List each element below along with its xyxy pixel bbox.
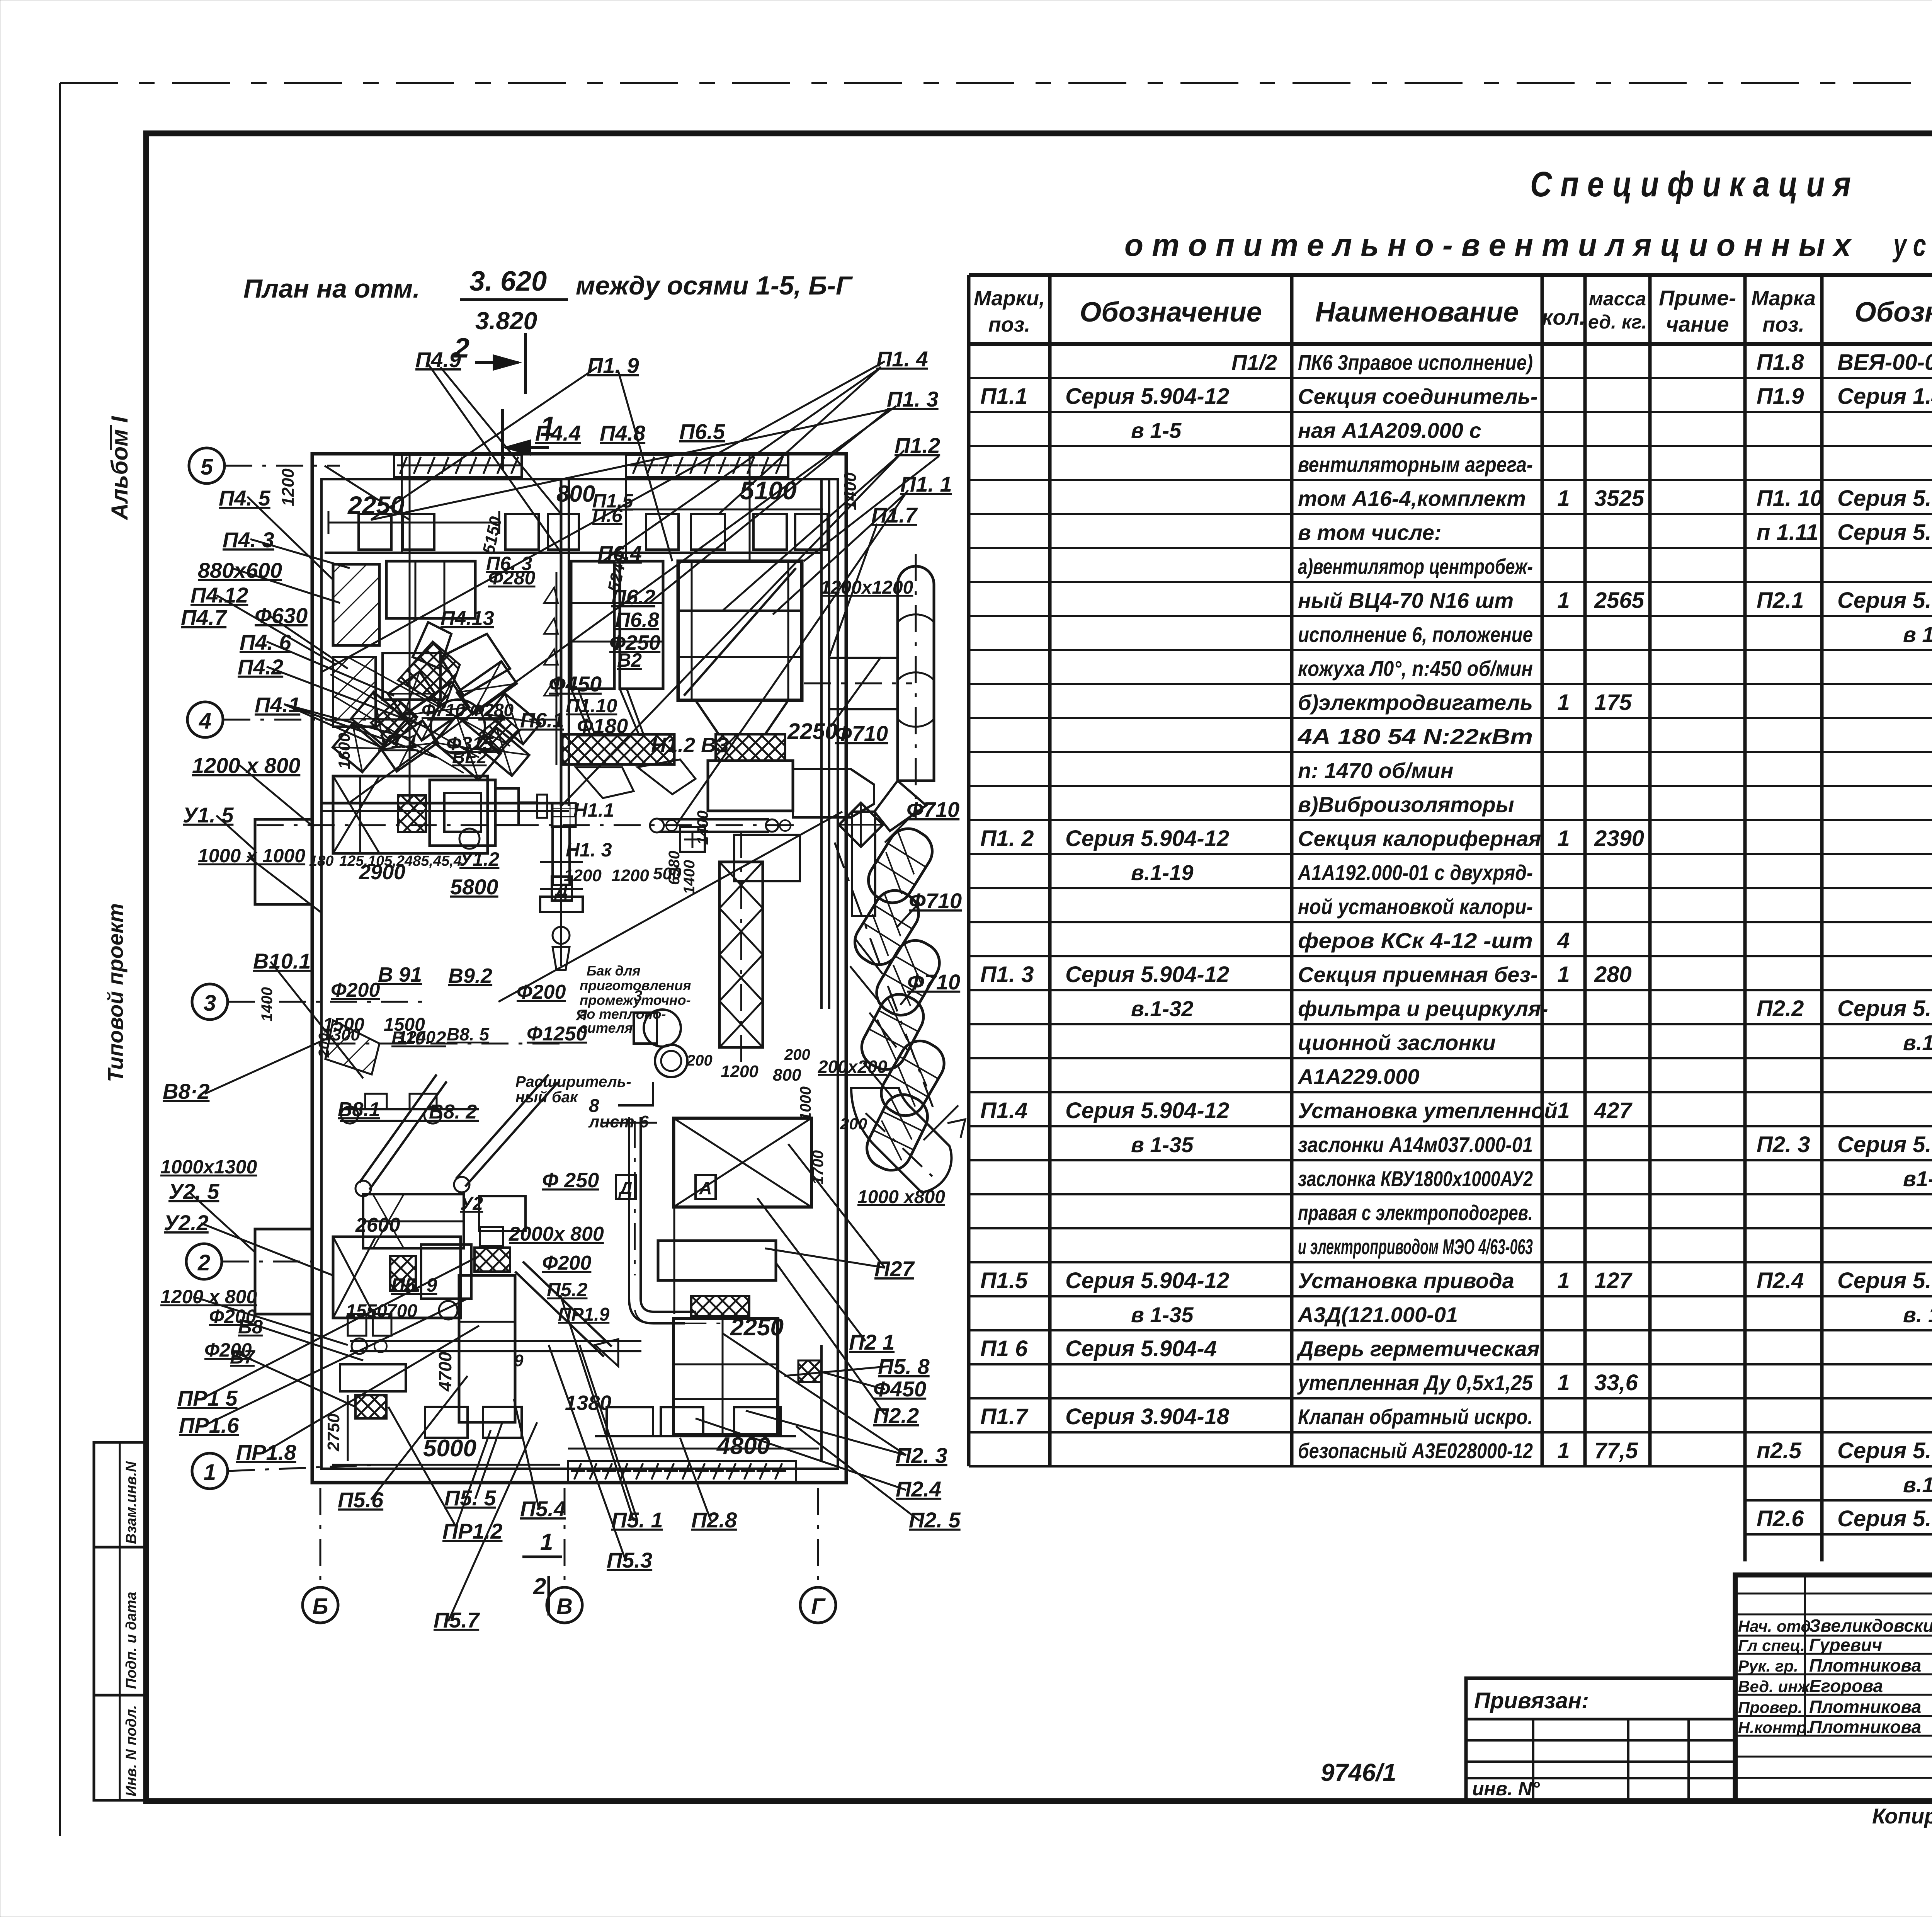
svg-text:Б: Б — [312, 1594, 328, 1619]
svg-text:Типовой проект: Типовой проект — [103, 903, 128, 1082]
svg-text:1: 1 — [1557, 1370, 1570, 1395]
svg-text:2250: 2250 — [787, 719, 837, 744]
svg-text:П1.7: П1.7 — [980, 1404, 1029, 1429]
svg-text:П2.8: П2.8 — [691, 1508, 737, 1532]
svg-text:ВЕЯ-00-00-00 а.XI: ВЕЯ-00-00-00 а.XI — [1837, 350, 1932, 375]
svg-text:5000: 5000 — [423, 1435, 476, 1462]
svg-text:Егорова: Егорова — [1809, 1676, 1883, 1696]
svg-text:Серия 5.904-5: Серия 5.904-5 — [1837, 486, 1932, 511]
svg-text:Приме-: Приме- — [1659, 286, 1736, 310]
svg-text:1200 х 800: 1200 х 800 — [160, 1286, 257, 1308]
svg-text:2750: 2750 — [324, 1413, 343, 1452]
svg-text:Установка утепленной: Установка утепленной — [1298, 1098, 1558, 1123]
svg-text:П4.9: П4.9 — [415, 347, 461, 372]
svg-text:180: 180 — [309, 853, 333, 869]
svg-text:1600: 1600 — [335, 733, 353, 769]
svg-text:Д: Д — [618, 1178, 632, 1198]
svg-text:4: 4 — [1557, 928, 1570, 953]
svg-text:фильтра и рециркуля-: фильтра и рециркуля- — [1298, 996, 1548, 1021]
svg-text:Секция приемная без-: Секция приемная без- — [1298, 962, 1538, 987]
svg-text:Секция калориферная: Секция калориферная — [1298, 826, 1541, 851]
svg-text:Серия 5.904-12: Серия 5.904-12 — [1065, 826, 1229, 851]
svg-text:ный бак: ный бак — [515, 1089, 578, 1106]
svg-text:Бак для: Бак для — [587, 963, 641, 979]
svg-text:4700: 4700 — [435, 1352, 455, 1392]
svg-text:в1-32: в1-32 — [1903, 1166, 1932, 1191]
svg-text:ПР1 5: ПР1 5 — [177, 1386, 238, 1410]
svg-text:в.1-35: в.1-35 — [1903, 1473, 1932, 1497]
svg-text:Расширитель-: Расширитель- — [515, 1073, 631, 1090]
svg-text:Ф200: Ф200 — [517, 981, 566, 1003]
svg-text:1: 1 — [204, 1460, 216, 1485]
svg-text:П1.5: П1.5 — [980, 1268, 1028, 1293]
svg-text:3: 3 — [634, 987, 642, 1004]
svg-text:1200 х 800: 1200 х 800 — [192, 753, 300, 778]
svg-text:Звеликдовский: Звеликдовский — [1809, 1616, 1932, 1636]
svg-text:Обозначение: Обозначение — [1080, 297, 1262, 328]
svg-text:В: В — [556, 1594, 573, 1619]
svg-text:1000 х800: 1000 х800 — [857, 1187, 945, 1207]
svg-text:1: 1 — [1557, 962, 1570, 987]
svg-text:4800: 4800 — [716, 1433, 770, 1459]
svg-text:200х200: 200х200 — [818, 1057, 887, 1077]
svg-text:П6.5: П6.5 — [679, 419, 725, 444]
svg-text:Серия 5.904-12: Серия 5.904-12 — [1065, 962, 1229, 987]
svg-text:Ф280: Ф280 — [488, 567, 536, 589]
svg-text:1: 1 — [1557, 486, 1570, 511]
svg-text:П1.7: П1.7 — [871, 503, 918, 527]
svg-text:В9.2: В9.2 — [448, 964, 492, 987]
svg-text:Секция соединитель-: Секция соединитель- — [1298, 384, 1538, 409]
svg-text:У1. 5: У1. 5 — [183, 803, 234, 827]
svg-text:заслонки А14м037.000-01: заслонки А14м037.000-01 — [1298, 1132, 1533, 1157]
svg-text:2250: 2250 — [730, 1314, 784, 1341]
svg-text:В8.1: В8.1 — [338, 1098, 380, 1121]
svg-text:П2.6: П2.6 — [1757, 1506, 1804, 1531]
svg-text:П1.1: П1.1 — [980, 384, 1027, 409]
svg-text:Подп. и дата: Подп. и дата — [123, 1592, 139, 1689]
svg-text:127: 127 — [1594, 1268, 1633, 1293]
svg-text:П1.8: П1.8 — [1757, 350, 1804, 375]
svg-text:П2 1: П2 1 — [849, 1330, 895, 1354]
svg-text:кожуха Л0°, n:450 об/мин: кожуха Л0°, n:450 об/мин — [1298, 656, 1533, 681]
svg-text:1240: 1240 — [398, 1028, 435, 1047]
svg-text:П4.8: П4.8 — [600, 421, 646, 445]
svg-text:П1.4: П1.4 — [980, 1098, 1027, 1123]
svg-text:Серия 5.904-12: Серия 5.904-12 — [1837, 996, 1932, 1021]
svg-text:Дверь герметическая: Дверь герметическая — [1296, 1336, 1540, 1361]
svg-text:ед. кг.: ед. кг. — [1588, 311, 1647, 333]
svg-text:Серия 5.904-12: Серия 5.904-12 — [1837, 1132, 1932, 1157]
svg-text:77,5: 77,5 — [1594, 1438, 1638, 1463]
svg-text:1400: 1400 — [259, 987, 276, 1021]
svg-text:Обозначение: Обозначение — [1855, 297, 1932, 328]
svg-text:П1. 3: П1. 3 — [887, 387, 939, 411]
svg-text:3.820: 3.820 — [475, 307, 537, 335]
svg-text:2000х 800: 2000х 800 — [509, 1223, 604, 1245]
svg-text:П5. 5: П5. 5 — [444, 1486, 497, 1510]
svg-text:го теплоно-: го теплоно- — [580, 1006, 666, 1022]
svg-text:1400: 1400 — [681, 860, 698, 894]
svg-text:Клапан обратный искро.: Клапан обратный искро. — [1298, 1405, 1533, 1429]
svg-text:2: 2 — [533, 1573, 546, 1599]
svg-text:вентиляторным агрега-: вентиляторным агрега- — [1298, 452, 1533, 477]
svg-text:Г: Г — [811, 1594, 826, 1619]
svg-text:1: 1 — [1557, 1268, 1570, 1293]
svg-text:в 1-5: в 1-5 — [1903, 622, 1932, 647]
svg-text:1000 х 1000: 1000 х 1000 — [198, 845, 305, 867]
svg-text:П5. 9: П5. 9 — [391, 1274, 437, 1296]
svg-text:Серия 5.904-5: Серия 5.904-5 — [1837, 520, 1932, 545]
svg-text:П4.1: П4.1 — [255, 693, 300, 717]
svg-text:Серия 5.904-12: Серия 5.904-12 — [1065, 1268, 1229, 1293]
svg-text:9: 9 — [514, 1351, 524, 1370]
svg-text:П4.12: П4.12 — [190, 583, 248, 607]
svg-text:У2. 5: У2. 5 — [168, 1179, 219, 1204]
svg-text:У1.2: У1.2 — [459, 848, 500, 870]
svg-text:1200: 1200 — [564, 866, 602, 885]
svg-text:Серия 5.904-12: Серия 5.904-12 — [1837, 1268, 1932, 1293]
svg-text:том А16-4,комплект: том А16-4,комплект — [1298, 486, 1526, 511]
svg-text:Привязан:: Привязан: — [1474, 1688, 1589, 1713]
svg-text:п2.5: п2.5 — [1757, 1438, 1802, 1463]
svg-text:Копировал:: Копировал: — [1872, 1804, 1932, 1828]
svg-text:700: 700 — [386, 1301, 417, 1321]
svg-text:в 1-5: в 1-5 — [1131, 418, 1182, 443]
svg-text:П1. 10: П1. 10 — [1757, 486, 1823, 511]
svg-text:П1/2: П1/2 — [1231, 350, 1277, 375]
svg-text:б)электродвигатель: б)электродвигатель — [1298, 690, 1533, 715]
svg-text:Ф710: Ф710 — [835, 721, 888, 746]
svg-text:Н.контр.: Н.контр. — [1738, 1718, 1811, 1737]
svg-text:П6.1: П6.1 — [520, 709, 564, 732]
svg-text:Ф180: Ф180 — [577, 715, 628, 738]
svg-text:кол.: кол. — [1542, 305, 1585, 329]
svg-text:ПР1.8: ПР1.8 — [236, 1440, 296, 1464]
svg-text:о т о п и т е л ь н о - в е н: о т о п и т е л ь н о - в е н т и л я ц … — [1124, 228, 1852, 263]
svg-text:У1.1: У1.1 — [378, 731, 418, 752]
svg-text:3525: 3525 — [1594, 486, 1645, 511]
svg-text:В8: В8 — [238, 1316, 263, 1338]
svg-text:1: 1 — [1557, 1438, 1570, 1463]
svg-text:В10.1: В10.1 — [253, 949, 311, 973]
svg-text:Наименование: Наименование — [1315, 297, 1519, 328]
svg-text:2900: 2900 — [359, 861, 405, 884]
svg-text:А: А — [699, 1178, 712, 1198]
svg-text:880х600: 880х600 — [198, 558, 282, 582]
svg-text:Серия 5.904-12: Серия 5.904-12 — [1837, 588, 1932, 613]
svg-text:заслонка КВУ1800х1000АУ2: заслонка КВУ1800х1000АУ2 — [1298, 1166, 1533, 1191]
svg-text:Серия 5.904-12: Серия 5.904-12 — [1837, 1438, 1932, 1463]
svg-text:чание: чание — [1666, 312, 1729, 336]
svg-text:Я: Я — [575, 1007, 587, 1024]
svg-text:Серия 3.904-18: Серия 3.904-18 — [1065, 1404, 1230, 1429]
svg-text:1200: 1200 — [611, 866, 649, 885]
svg-text:Серия 5.904-4: Серия 5.904-4 — [1837, 1506, 1932, 1531]
svg-text:П4.2: П4.2 — [238, 655, 283, 679]
svg-text:П4. 5: П4. 5 — [219, 486, 271, 510]
svg-text:Н1.2 ВЗ: Н1.2 ВЗ — [651, 734, 729, 757]
svg-text:427: 427 — [1594, 1098, 1633, 1123]
svg-text:У2.2: У2.2 — [164, 1210, 209, 1235]
svg-text:у с т а н о в о к: у с т а н о в о к — [1892, 228, 1932, 263]
svg-text:П1. 1: П1. 1 — [900, 472, 952, 496]
svg-text:Взам.инв.N: Взам.инв.N — [123, 1461, 139, 1544]
svg-text:Ф450: Ф450 — [873, 1377, 926, 1401]
svg-text:между осями 1-5, Б-Г: между осями 1-5, Б-Г — [576, 271, 853, 300]
svg-text:в.1-32: в.1-32 — [1131, 996, 1193, 1021]
svg-text:ПК6 3правое исполнение): ПК6 3правое исполнение) — [1298, 350, 1533, 375]
svg-text:Плотникова: Плотникова — [1809, 1655, 1921, 1675]
svg-text:П.6: П.6 — [592, 505, 623, 526]
svg-text:Ф630: Ф630 — [255, 603, 308, 628]
svg-text:поз.: поз. — [1762, 313, 1804, 336]
svg-text:Инв. N подл.: Инв. N подл. — [123, 1705, 139, 1796]
svg-text:П1. 2: П1. 2 — [980, 826, 1034, 851]
svg-text:исполнение 6, положение: исполнение 6, положение — [1298, 622, 1533, 647]
svg-text:утепленная Ду 0,5х1,25: утепленная Ду 0,5х1,25 — [1297, 1371, 1533, 1395]
svg-text:в.1-19: в.1-19 — [1131, 860, 1193, 885]
svg-text:а)вентилятор центробеж-: а)вентилятор центробеж- — [1298, 554, 1533, 579]
svg-text:Ф200: Ф200 — [331, 979, 380, 1001]
svg-text:П4.4: П4.4 — [535, 421, 581, 445]
svg-text:П4. 3: П4. 3 — [223, 528, 274, 552]
svg-text:П5.2: П5.2 — [547, 1279, 588, 1301]
svg-text:Серия 5.904-12: Серия 5.904-12 — [1065, 1098, 1229, 1123]
svg-text:П2. 3: П2. 3 — [896, 1443, 947, 1468]
svg-text:П2. 5: П2. 5 — [909, 1508, 961, 1532]
svg-text:4: 4 — [199, 708, 211, 734]
svg-text:ПР1.9: ПР1.9 — [558, 1304, 610, 1325]
svg-text:П5. 8: П5. 8 — [878, 1354, 930, 1379]
svg-text:Ф450: Ф450 — [549, 672, 602, 696]
svg-text:П4. 6: П4. 6 — [240, 630, 292, 654]
svg-text:П2.2: П2.2 — [873, 1403, 919, 1428]
svg-text:П2.2: П2.2 — [1757, 996, 1804, 1021]
svg-text:200: 200 — [840, 1115, 867, 1133]
svg-text:П5. 1: П5. 1 — [611, 1508, 663, 1532]
svg-text:П1.10: П1.10 — [566, 695, 617, 717]
svg-text:3: 3 — [204, 991, 216, 1016]
svg-text:п 1.11: п 1.11 — [1757, 520, 1818, 545]
svg-text:200: 200 — [686, 1052, 713, 1069]
svg-text:4А 180 54 N:22кВт: 4А 180 54 N:22кВт — [1298, 724, 1533, 749]
svg-text:Ф200: Ф200 — [542, 1252, 591, 1274]
svg-text:масса: масса — [1589, 288, 1646, 310]
svg-text:800: 800 — [556, 481, 595, 507]
svg-text:С п е ц и ф и к а ц и я: С п е ц и ф и к а ц и я — [1530, 165, 1851, 204]
svg-text:П1. 3: П1. 3 — [980, 962, 1034, 987]
svg-text:1300: 1300 — [322, 1025, 360, 1044]
svg-text:33,6: 33,6 — [1594, 1370, 1638, 1395]
svg-text:5800: 5800 — [450, 875, 498, 899]
svg-text:П6.8: П6.8 — [615, 608, 659, 632]
svg-text:П5.6: П5.6 — [338, 1488, 384, 1512]
svg-text:2390: 2390 — [1594, 826, 1644, 851]
svg-text:П1.2: П1.2 — [895, 433, 940, 458]
svg-text:1: 1 — [1557, 588, 1570, 613]
svg-text:Вед. инж: Вед. инж — [1738, 1677, 1811, 1696]
svg-text:П2.4: П2.4 — [1757, 1268, 1804, 1293]
svg-text:6980: 6980 — [666, 851, 683, 885]
svg-text:1: 1 — [1557, 1098, 1570, 1123]
svg-text:лист 6: лист 6 — [588, 1112, 649, 1131]
svg-text:У2: У2 — [460, 1193, 483, 1214]
svg-text:n: 1470 об/мин: n: 1470 об/мин — [1298, 758, 1453, 783]
svg-text:2: 2 — [197, 1250, 210, 1275]
svg-text:П4.7: П4.7 — [181, 605, 228, 630]
svg-text:Серия 1.494-27: Серия 1.494-27 — [1837, 384, 1932, 409]
svg-text:в)Виброизоляторы: в)Виброизоляторы — [1298, 792, 1514, 817]
svg-text:Серия 5.904-4: Серия 5.904-4 — [1065, 1336, 1217, 1361]
svg-text:Ф710: Ф710 — [907, 970, 960, 994]
svg-text:1400: 1400 — [694, 810, 711, 845]
svg-text:1200: 1200 — [279, 468, 298, 506]
svg-text:Плотникова: Плотникова — [1809, 1697, 1921, 1717]
svg-text:В8. 5: В8. 5 — [447, 1024, 490, 1044]
svg-text:1000: 1000 — [797, 1086, 814, 1121]
svg-text:200: 200 — [784, 1046, 810, 1063]
svg-text:в.1-19: в.1-19 — [1903, 1030, 1932, 1055]
svg-text:План на отм.: План на отм. — [243, 274, 420, 303]
svg-text:1: 1 — [1557, 826, 1570, 851]
svg-text:1550: 1550 — [346, 1301, 387, 1321]
svg-text:В2: В2 — [617, 649, 642, 671]
svg-text:5: 5 — [201, 455, 213, 480]
svg-text:280: 280 — [1594, 962, 1632, 987]
svg-text:Н1. 3: Н1. 3 — [566, 839, 612, 861]
svg-text:Серия 5.904-12: Серия 5.904-12 — [1065, 384, 1229, 409]
svg-text:ная А1А209.000 с: ная А1А209.000 с — [1298, 418, 1481, 443]
svg-text:в. 1.35: в. 1.35 — [1903, 1302, 1932, 1327]
svg-text:П1.9: П1.9 — [1757, 384, 1804, 409]
svg-text:2565: 2565 — [1594, 588, 1645, 613]
svg-text:А3Д(121.000-01: А3Д(121.000-01 — [1297, 1302, 1458, 1327]
svg-text:П1 6: П1 6 — [980, 1336, 1028, 1361]
svg-text:Марка: Марка — [1751, 287, 1816, 310]
svg-text:1: 1 — [540, 1529, 553, 1555]
svg-text:3. 620: 3. 620 — [469, 266, 547, 297]
svg-text:в том числе:: в том числе: — [1298, 520, 1442, 545]
svg-text:1200х1200: 1200х1200 — [820, 577, 913, 598]
svg-text:ционной заслонки: ционной заслонки — [1298, 1030, 1496, 1055]
svg-text:П27: П27 — [874, 1256, 915, 1281]
svg-text:1: 1 — [1557, 690, 1570, 715]
svg-text:В8·2: В8·2 — [163, 1079, 209, 1103]
svg-text:800: 800 — [773, 1066, 801, 1084]
svg-text:Провер.: Провер. — [1738, 1698, 1803, 1716]
svg-text:ный ВЦ4-70 N16 шт: ный ВЦ4-70 N16 шт — [1298, 588, 1514, 613]
svg-text:Рук. гр.: Рук. гр. — [1738, 1657, 1798, 1675]
svg-text:А1А229.000: А1А229.000 — [1297, 1064, 1419, 1089]
svg-text:1000х1300: 1000х1300 — [160, 1156, 257, 1178]
svg-text:Н1.1: Н1.1 — [573, 799, 614, 821]
svg-text:В7: В7 — [230, 1346, 255, 1368]
svg-text:П2. 3: П2. 3 — [1757, 1132, 1810, 1157]
svg-text:феров КСк 4-12 -шт: феров КСк 4-12 -шт — [1298, 928, 1533, 953]
svg-text:1200: 1200 — [721, 1062, 759, 1081]
svg-text:в 1-35: в 1-35 — [1131, 1132, 1194, 1157]
svg-text:Плотникова: Плотникова — [1809, 1717, 1921, 1737]
svg-text:Ф710: Ф710 — [906, 797, 959, 822]
svg-text:1700: 1700 — [810, 1150, 827, 1185]
svg-text:П1. 9: П1. 9 — [587, 353, 639, 378]
svg-text:Установка привода: Установка привода — [1298, 1268, 1514, 1293]
svg-text:Ф 250: Ф 250 — [542, 1169, 599, 1192]
svg-text:П5.7: П5.7 — [434, 1608, 480, 1632]
svg-text:Марки,: Марки, — [974, 287, 1045, 310]
svg-text:в 1-35: в 1-35 — [1131, 1302, 1194, 1327]
svg-text:Ф710: Ф710 — [909, 889, 962, 913]
svg-text:П1. 4: П1. 4 — [876, 347, 928, 371]
svg-text:правая с электроподогрев.: правая с электроподогрев. — [1298, 1200, 1533, 1225]
svg-text:П5.3: П5.3 — [607, 1548, 652, 1572]
svg-text:2600: 2600 — [355, 1214, 400, 1236]
svg-text:и электроприводом МЭО 4/63-063: и электроприводом МЭО 4/63-063 — [1298, 1234, 1533, 1259]
svg-text:175: 175 — [1594, 690, 1632, 715]
svg-text:сителя: сителя — [580, 1020, 633, 1036]
svg-text:ПР1.2: ПР1.2 — [442, 1519, 502, 1543]
svg-text:безопасный А3Е028000-12: безопасный А3Е028000-12 — [1298, 1439, 1533, 1463]
svg-text:П2.1: П2.1 — [1757, 588, 1804, 613]
svg-text:Ф1250: Ф1250 — [527, 1023, 587, 1045]
svg-text:П4.13: П4.13 — [440, 607, 494, 630]
svg-text:ПР1.6: ПР1.6 — [179, 1413, 239, 1437]
svg-text:Нач. отд: Нач. отд — [1738, 1617, 1811, 1635]
svg-text:ВЕ2: ВЕ2 — [452, 747, 487, 767]
svg-text:Ф710 Ф280: Ф710 Ф280 — [422, 700, 514, 720]
svg-text:Гл спец.: Гл спец. — [1738, 1636, 1805, 1655]
svg-text:П5.4: П5.4 — [520, 1496, 566, 1521]
svg-text:9746/1: 9746/1 — [1321, 1759, 1396, 1786]
svg-text:А1А192.000-01 с двухряд-: А1А192.000-01 с двухряд- — [1297, 860, 1533, 885]
svg-text:поз.: поз. — [988, 313, 1031, 336]
svg-text:В 91: В 91 — [378, 963, 422, 986]
svg-text:инв. N°: инв. N° — [1472, 1778, 1540, 1800]
svg-text:П2.4: П2.4 — [896, 1477, 941, 1501]
svg-text:В8. 2: В8. 2 — [429, 1101, 477, 1123]
svg-text:Гуревич: Гуревич — [1809, 1635, 1882, 1655]
svg-text:ной установкой калори-: ной установкой калори- — [1298, 894, 1533, 919]
